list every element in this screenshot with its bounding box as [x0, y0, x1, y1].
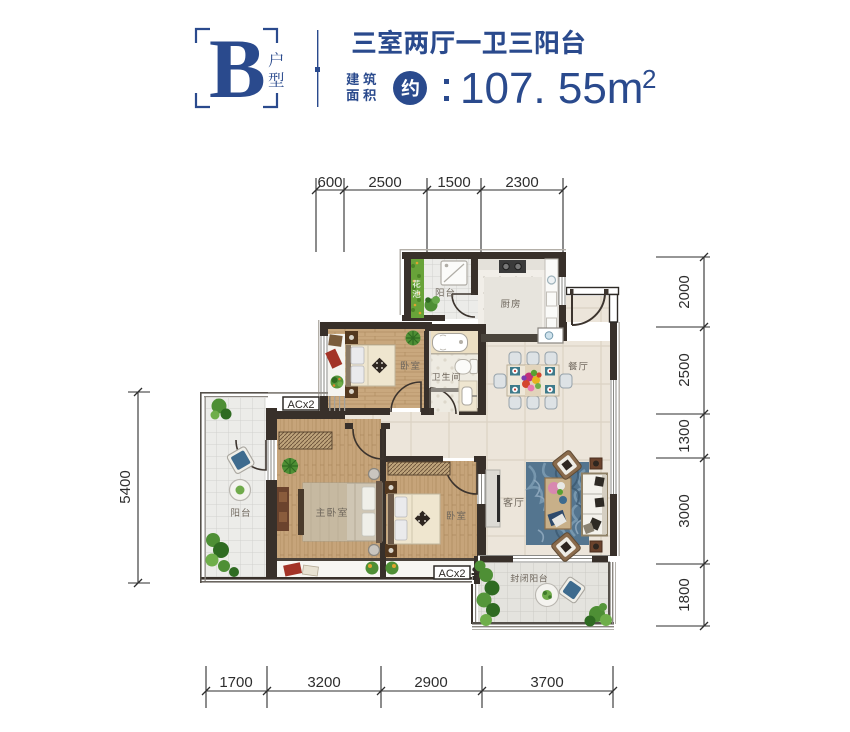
svg-text:1800: 1800: [676, 578, 693, 611]
svg-text:2: 2: [642, 64, 656, 94]
svg-text:5400: 5400: [117, 470, 134, 503]
svg-text:3700: 3700: [530, 674, 563, 691]
svg-text:1700: 1700: [219, 674, 252, 691]
svg-text:1300: 1300: [676, 419, 693, 452]
svg-text:2500: 2500: [368, 174, 401, 191]
svg-text:3000: 3000: [676, 494, 693, 527]
svg-text:ACx2: ACx2: [288, 399, 315, 411]
svg-text:1500: 1500: [437, 174, 470, 191]
svg-text:2500: 2500: [676, 353, 693, 386]
svg-text:600: 600: [317, 174, 342, 191]
svg-text:ACx2: ACx2: [439, 568, 466, 580]
svg-text:2000: 2000: [676, 275, 693, 308]
svg-text:B: B: [209, 22, 266, 116]
svg-text:107. 55m: 107. 55m: [460, 64, 643, 113]
svg-text:2300: 2300: [505, 174, 538, 191]
svg-text:2900: 2900: [414, 674, 447, 691]
svg-text:3200: 3200: [307, 674, 340, 691]
